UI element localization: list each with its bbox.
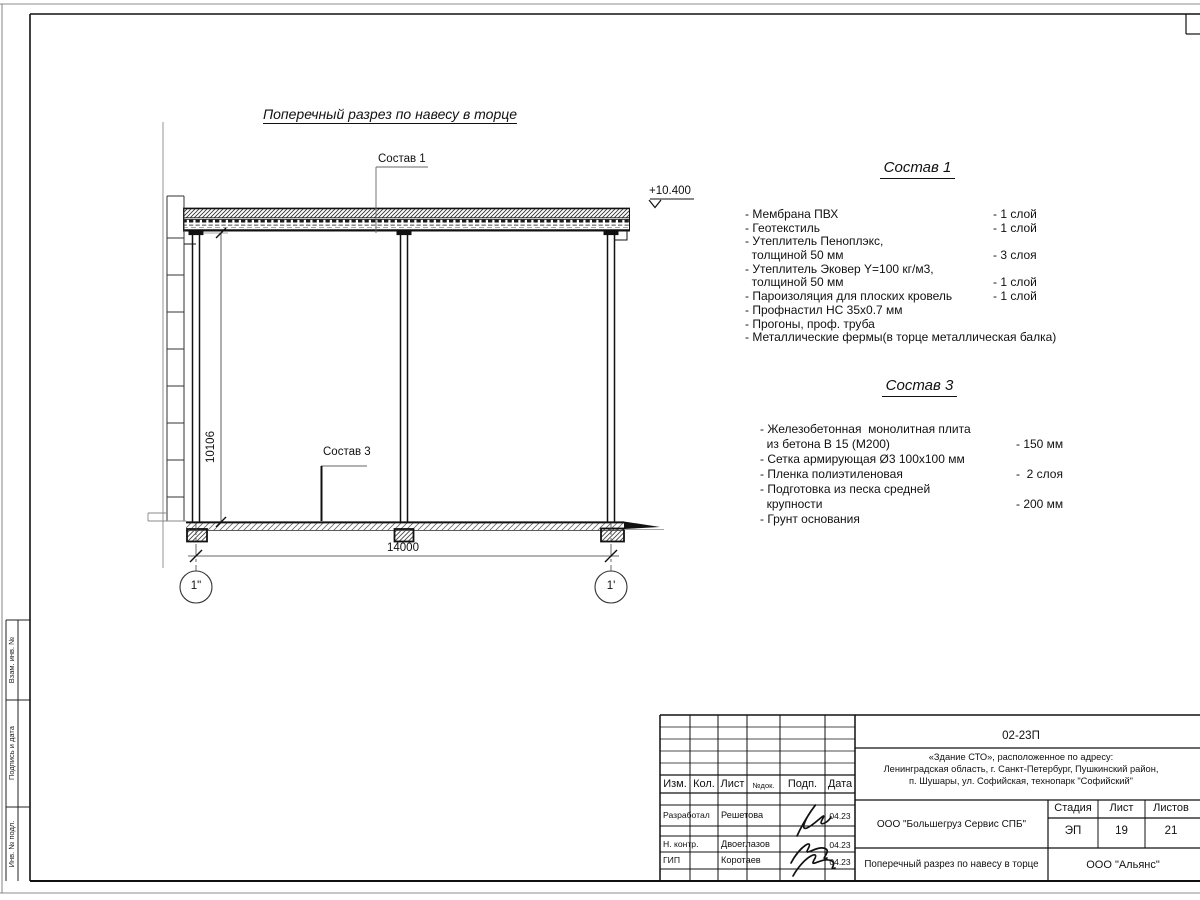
- frame-label-vzam-inv: Взам. инв. №: [7, 620, 17, 700]
- dimension-width: 14000: [353, 542, 453, 554]
- callout-sostav3-label: Состав 3: [323, 446, 371, 458]
- titleblock-col-kol: Кол.: [690, 778, 718, 790]
- spec-item: крупности- 200 мм: [760, 497, 1092, 512]
- titleblock-row2-name: Двоеглазов: [721, 839, 770, 849]
- spec-item: - Мембрана ПВХ- 1 слой: [745, 208, 1090, 222]
- titleblock-sheet-label: Лист: [1098, 802, 1145, 814]
- roof-assembly: [183, 208, 630, 244]
- spec-item: из бетона В 15 (М200)- 150 мм: [760, 437, 1092, 452]
- drawing-sheet: Поперечный разрез по навесу в торце Сост…: [0, 0, 1200, 900]
- titleblock-object-line2: Ленинградская область, г. Санкт-Петербур…: [855, 764, 1187, 774]
- end-wall-ladder: [148, 122, 186, 568]
- spec-item: - Грунт основания: [760, 512, 1092, 527]
- titleblock-stage-value: ЭП: [1048, 825, 1098, 837]
- titleblock-row1-name: Решетова: [721, 810, 763, 820]
- spec-item: толщиной 50 мм- 1 слой: [745, 276, 1090, 290]
- axis-bubble-right-label: 1': [596, 580, 626, 592]
- titleblock-object-line1: «Здание СТО», расположенное по адресу:: [855, 752, 1187, 762]
- titleblock-sheets-value: 21: [1145, 825, 1197, 837]
- titleblock-sheets-label: Листов: [1145, 802, 1197, 814]
- titleblock-row1-date: 04.23: [825, 811, 855, 821]
- drawing-title: Поперечный разрез по навесу в торце: [263, 106, 517, 124]
- slab-and-footings: [186, 522, 664, 542]
- titleblock-row3-date: 04.23: [825, 857, 855, 867]
- titleblock-org: ООО "Альянс": [1048, 859, 1198, 871]
- titleblock-col-list: Лист: [718, 778, 747, 790]
- titleblock-col-doc: №док.: [747, 781, 780, 790]
- spec-item: - Утеплитель Пеноплэкс,: [745, 235, 1090, 249]
- titleblock-col-izm: Изм.: [660, 778, 690, 790]
- titleblock-row2-date: 04.23: [825, 840, 855, 850]
- spec-sostav3-items: - Железобетонная монолитная плита из бет…: [747, 422, 1092, 527]
- frame-label-podpis-data: Подпись и дата: [7, 713, 17, 793]
- callout-sostav1-label: Состав 1: [378, 153, 426, 165]
- titleblock-col-data: Дата: [825, 778, 855, 790]
- frame-label-inv-podl: Инв. № подл.: [7, 804, 17, 884]
- titleblock-stage-label: Стадия: [1048, 802, 1098, 814]
- spec-item: - Сетка армирующая Ø3 100x100 мм: [760, 452, 1092, 467]
- spec-sostav3: Состав 3 - Железобетонная монолитная пли…: [747, 377, 1092, 527]
- spec-item: - Пароизоляция для плоских кровель- 1 сл…: [745, 290, 1090, 304]
- titleblock-sheet-value: 19: [1098, 825, 1145, 837]
- spec-sostav3-heading: Состав 3: [882, 377, 958, 397]
- spec-item: - Утеплитель Эковер Y=100 кг/м3,: [745, 263, 1090, 277]
- spec-item: - Подготовка из песка средней: [760, 482, 1092, 497]
- spec-item: - Металлические фермы(в торце металличес…: [745, 331, 1090, 345]
- spec-sostav1-heading: Состав 1: [880, 159, 956, 179]
- spec-item: толщиной 50 мм- 3 слоя: [745, 249, 1090, 263]
- titleblock-col-podp: Подп.: [780, 778, 825, 790]
- axis-bubble-left-label: 1": [181, 580, 211, 592]
- spec-item: - Пленка полиэтиленовая- 2 слоя: [760, 467, 1092, 482]
- level-mark: [649, 199, 694, 208]
- titleblock-company: ООО "Большегруз Сервис СПБ": [856, 819, 1047, 830]
- spec-item: - Железобетонная монолитная плита: [760, 422, 1092, 437]
- spec-item: - Геотекстиль- 1 слой: [745, 222, 1090, 236]
- titleblock-sheet-title: Поперечный разрез по навесу в торце: [856, 859, 1047, 870]
- dimension-height: 10106: [205, 425, 219, 469]
- spec-sostav1: Состав 1 - Мембрана ПВХ- 1 слой - Геотек…: [745, 159, 1090, 345]
- titleblock-row2-role: Н. контр.: [663, 839, 698, 849]
- titleblock-row1-role: Разработал: [663, 810, 710, 820]
- titleblock-row3-name: Коротаев: [721, 855, 761, 865]
- level-mark-value: +10.400: [649, 185, 691, 197]
- spec-sostav1-items: - Мембрана ПВХ- 1 слой - Геотекстиль- 1 …: [745, 208, 1090, 345]
- titleblock-object-line3: п. Шушары, ул. Софийская, технопарк "Соф…: [855, 776, 1187, 786]
- titleblock-doc-number: 02-23П: [855, 730, 1187, 742]
- titleblock-row3-role: ГИП: [663, 855, 680, 865]
- spec-item: - Прогоны, проф. труба: [745, 318, 1090, 332]
- spec-item: - Профнастил НС 35x0.7 мм: [745, 304, 1090, 318]
- columns: [189, 231, 619, 522]
